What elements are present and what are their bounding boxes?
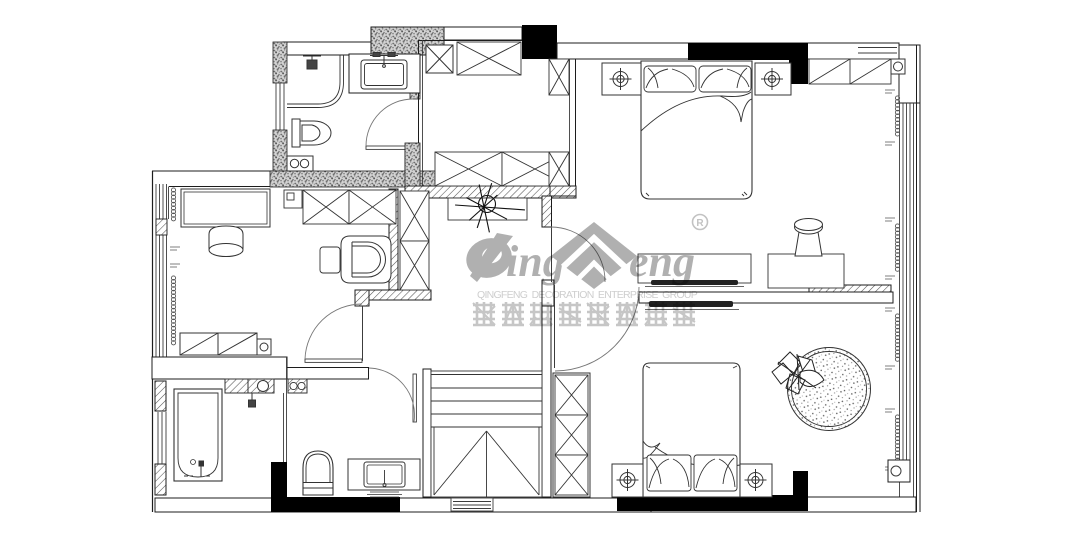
svg-text:eng: eng xyxy=(629,237,695,286)
svg-text:R: R xyxy=(696,218,704,229)
svg-text:ing: ing xyxy=(506,237,565,286)
svg-text:QINGFENG DECORATION ENTERPRI: QINGFENG DECORATION ENTERPRISE GROUP xyxy=(477,289,699,301)
